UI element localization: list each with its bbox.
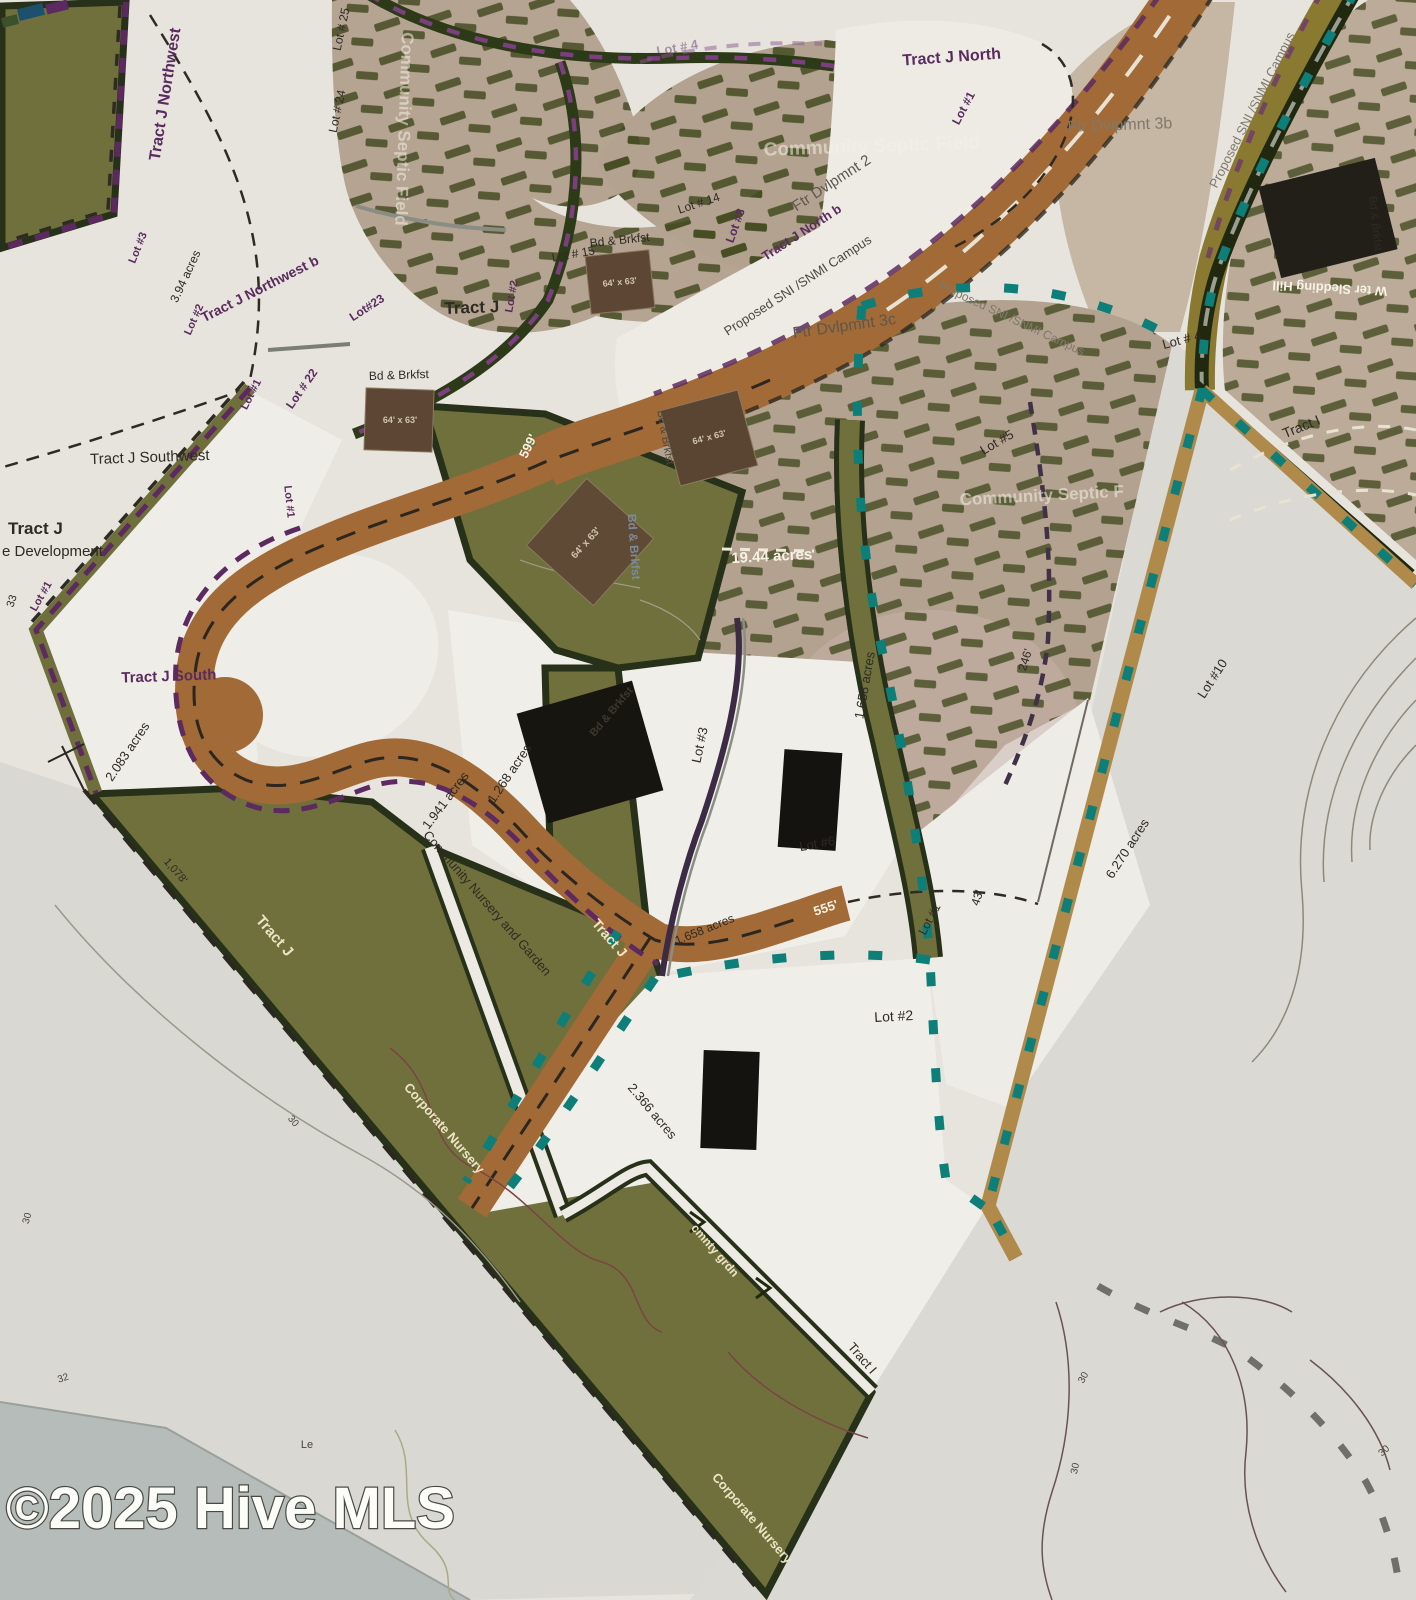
culdesac-bulb — [187, 677, 263, 753]
parcel-northwest — [2, 2, 126, 248]
plat-map-image: Tract J Northwest Lot # 25 Lot # 24 Comm… — [0, 0, 1416, 1600]
label-building-dim: 64' x 63' — [383, 415, 417, 425]
mls-watermark: ©2025 Hive MLS — [6, 1476, 455, 1541]
label-lot-2-se: Lot #2 — [874, 1007, 914, 1025]
label-development: e Development — [2, 543, 104, 560]
label-bd-brkfst-b: Bd & Brkfst — [369, 367, 430, 383]
label-tract-j-left: Tract J — [8, 519, 63, 538]
label-le: Le — [301, 1439, 313, 1451]
building-footprint — [700, 1050, 759, 1150]
label-tract-j-top: Tract J — [444, 297, 499, 318]
label-tract-j-south: Tract J South — [121, 666, 217, 686]
plat-map: Tract J Northwest Lot # 25 Lot # 24 Comm… — [0, 0, 1416, 1600]
